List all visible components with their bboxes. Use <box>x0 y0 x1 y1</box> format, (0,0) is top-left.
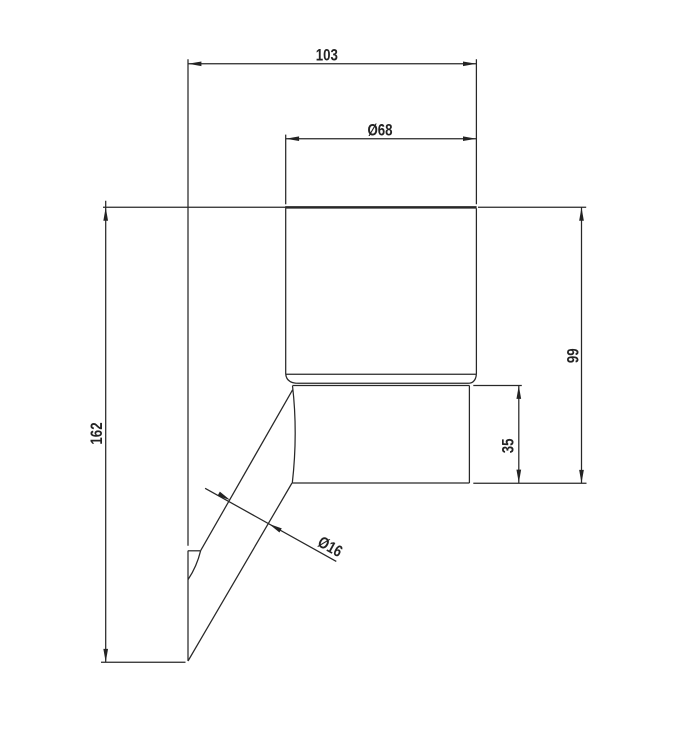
svg-text:103: 103 <box>316 47 338 64</box>
svg-text:162: 162 <box>89 422 106 444</box>
svg-text:35: 35 <box>501 439 518 454</box>
svg-text:Ø68: Ø68 <box>367 122 392 139</box>
svg-text:99: 99 <box>566 348 583 363</box>
